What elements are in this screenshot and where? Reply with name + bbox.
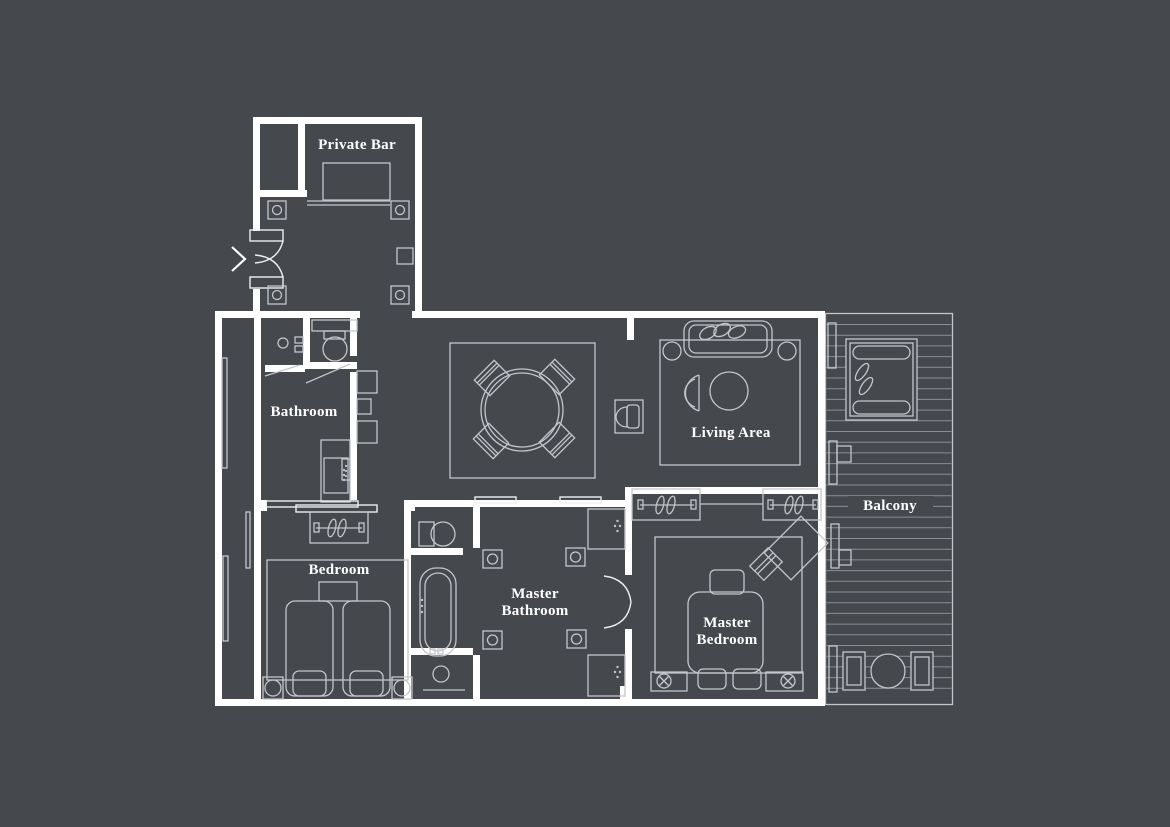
- window-frame-icon: [829, 646, 837, 692]
- double-door-icon: [604, 576, 631, 628]
- door-handle-icon: [837, 446, 851, 462]
- round-table-icon: [871, 654, 905, 688]
- nightstand-lamp-icon: [766, 672, 803, 691]
- nightstand-lamp-icon: [651, 672, 687, 691]
- bar-counter-icon: [307, 163, 390, 205]
- balcony-label: Balcony: [863, 498, 917, 514]
- wall-sconce-icon: [268, 201, 409, 304]
- side-lamp-icon: [663, 342, 681, 360]
- vanity-sink-icon: [588, 655, 625, 696]
- round-coffee-table-icon: [710, 372, 748, 410]
- curtain-icon: [222, 358, 250, 641]
- twin-bed-icon: [286, 601, 333, 696]
- tv-console-icon: [615, 400, 643, 433]
- entry-double-door-icon: [250, 230, 283, 288]
- side-lamp-icon: [778, 342, 796, 360]
- armchair-icon: [685, 375, 699, 411]
- living-rug: [660, 340, 800, 465]
- desk-chair-icon: [750, 548, 783, 581]
- master-bedroom-rug: [655, 537, 802, 673]
- sink-icon: [278, 337, 303, 352]
- floor-plan-canvas: Private Bar Bathroom Bedroom Master Bath…: [0, 0, 1170, 827]
- twin-bed-icon: [343, 601, 390, 696]
- bedroom-label: Bedroom: [309, 562, 370, 578]
- dining-area: [450, 343, 643, 478]
- living-area-label: Living Area: [691, 425, 770, 441]
- toilet-icon: [419, 522, 455, 546]
- master-bedroom-label-line1: Master: [703, 615, 751, 631]
- door-handle-icon: [839, 550, 851, 565]
- dining-chair-icon: [473, 423, 508, 458]
- sliding-door-frame-icon: [829, 441, 837, 484]
- bathroom-label: Bathroom: [270, 404, 337, 420]
- master-bedroom-label-line2: Bedroom: [697, 632, 758, 648]
- entry: [232, 230, 283, 288]
- nightstand-icon: [319, 582, 357, 601]
- sliding-door-frame-icon: [831, 524, 839, 568]
- outdoor-chair-icon: [911, 652, 933, 690]
- private-bar-room: [268, 163, 413, 304]
- master-bedroom-room: [632, 489, 828, 691]
- entry-arrow-icon: [232, 247, 245, 271]
- outdoor-chair-icon: [843, 652, 865, 690]
- wardrobe-icon: [310, 512, 368, 543]
- daybed-icon: [846, 339, 917, 420]
- floor-plan: Private Bar Bathroom Bedroom Master Bath…: [0, 0, 1170, 827]
- bedroom-rug: [267, 560, 408, 680]
- private-bar-label: Private Bar: [318, 137, 396, 153]
- bathtub-icon: [420, 568, 456, 656]
- hallway-shelves: [342, 371, 377, 480]
- wall-panel-icon: [397, 248, 413, 264]
- balcony-furniture: [843, 339, 933, 690]
- round-dining-table-icon: [481, 369, 563, 451]
- living-area-room: [660, 321, 800, 465]
- master-bathroom-label-line1: Master: [511, 586, 559, 602]
- master-bathroom-label-line2: Bathroom: [501, 603, 568, 619]
- vanity-sink-icon: [588, 509, 625, 549]
- dining-rug: [450, 343, 595, 478]
- sofa-icon: [684, 321, 772, 357]
